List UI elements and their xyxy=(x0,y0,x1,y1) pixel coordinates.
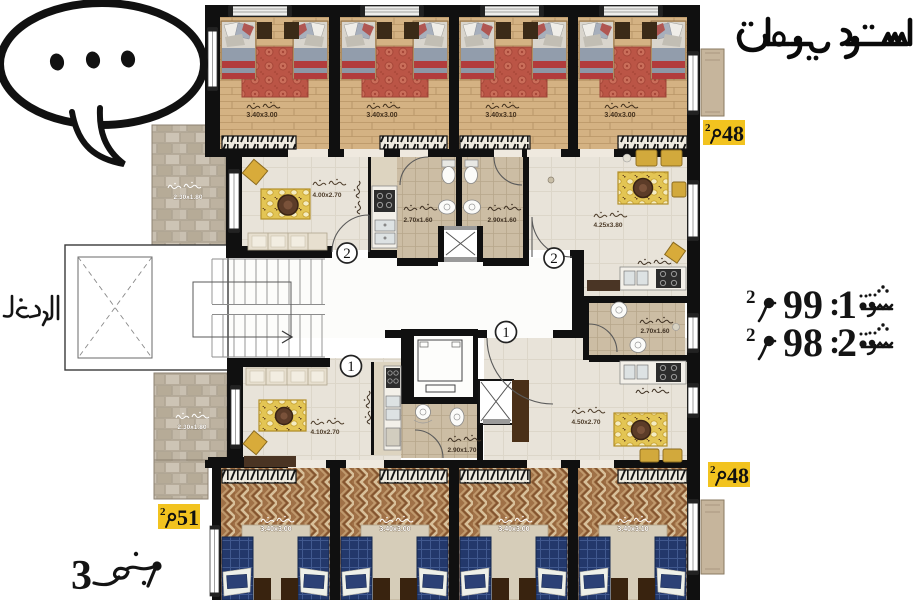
svg-text:2.70x1.60: 2.70x1.60 xyxy=(641,328,670,335)
svg-text:2: 2 xyxy=(710,464,716,476)
svg-text:2.90x1.70: 2.90x1.70 xyxy=(448,447,477,454)
svg-text:1: 1 xyxy=(502,325,510,341)
svg-text:3.40x3.10: 3.40x3.10 xyxy=(617,526,648,533)
svg-text:2: 2 xyxy=(550,251,558,267)
svg-text:48: 48 xyxy=(727,463,749,488)
svg-text:2: 2 xyxy=(705,122,711,134)
svg-text:2: 2 xyxy=(746,287,756,308)
svg-text:3.40x3.00: 3.40x3.00 xyxy=(498,526,529,533)
svg-text:98: 98 xyxy=(783,320,823,365)
svg-text:3.40x3.10: 3.40x3.10 xyxy=(485,112,516,119)
svg-text:3: 3 xyxy=(71,553,92,599)
svg-text:3.40x3.00: 3.40x3.00 xyxy=(604,112,635,119)
svg-text:3.40x3.00: 3.40x3.00 xyxy=(366,112,397,119)
svg-text:3.40x3.00: 3.40x3.00 xyxy=(379,526,410,533)
svg-text:2: 2 xyxy=(160,506,166,518)
svg-text:2.30x1.80: 2.30x1.80 xyxy=(178,424,207,431)
svg-text:4.10x2.70: 4.10x2.70 xyxy=(311,429,340,436)
svg-text:4.00x2.70: 4.00x2.70 xyxy=(313,192,342,199)
svg-text:2.30x1.80: 2.30x1.80 xyxy=(174,194,203,201)
svg-text:51: 51 xyxy=(177,505,199,530)
svg-text:2.90x1.60: 2.90x1.60 xyxy=(488,217,517,224)
svg-text:3.40x3.00: 3.40x3.00 xyxy=(260,526,291,533)
svg-text:2: 2 xyxy=(746,325,756,346)
svg-text:2: 2 xyxy=(837,320,857,365)
svg-text:4.50x2.70: 4.50x2.70 xyxy=(572,419,601,426)
svg-text:2.70x1.60: 2.70x1.60 xyxy=(404,217,433,224)
svg-text:2: 2 xyxy=(343,246,351,262)
svg-text:1: 1 xyxy=(347,359,355,375)
svg-text:3.40x3.00: 3.40x3.00 xyxy=(246,112,277,119)
svg-text:48: 48 xyxy=(722,121,744,146)
svg-text:4.25x3.80: 4.25x3.80 xyxy=(594,222,623,229)
